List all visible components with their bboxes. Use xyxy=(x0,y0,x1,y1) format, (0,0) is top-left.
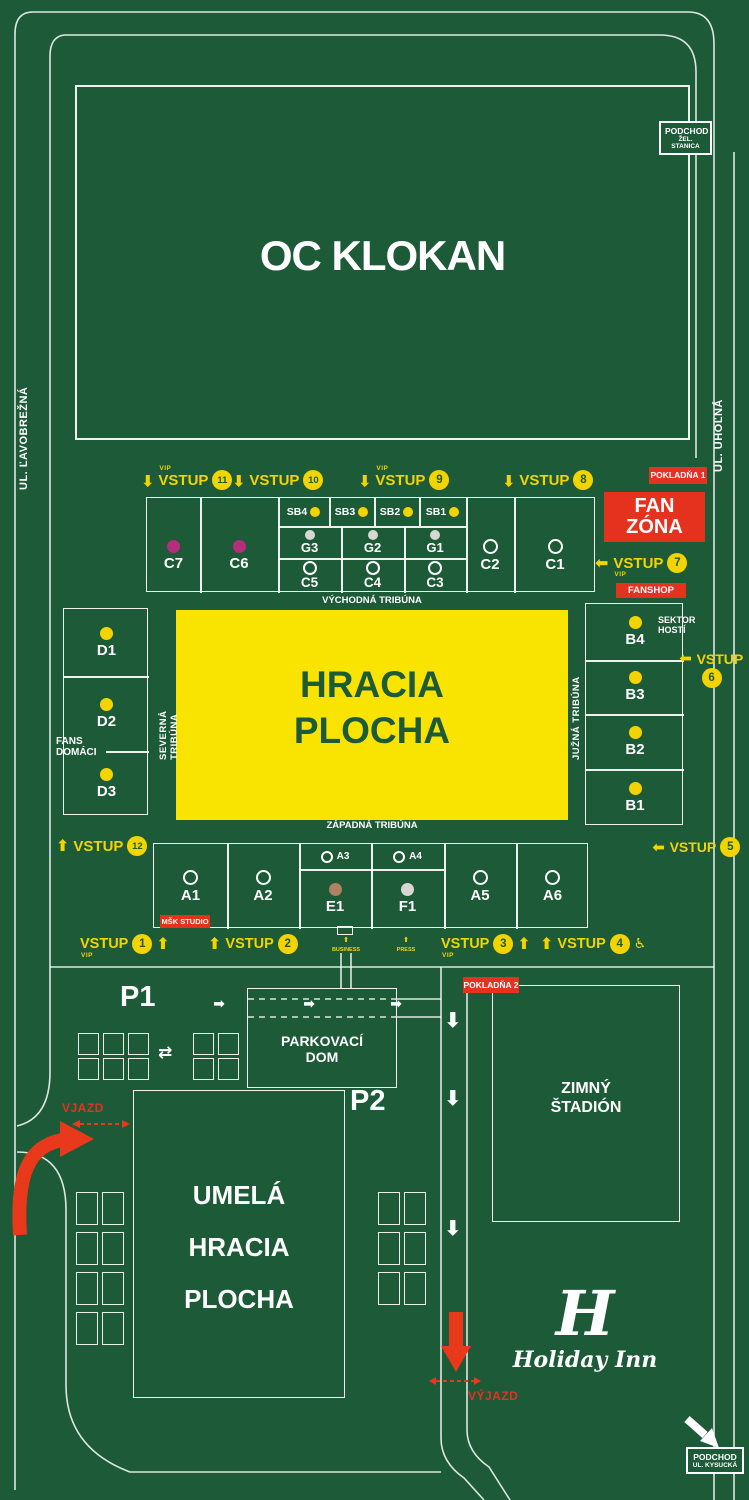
seat-dot-yellow xyxy=(100,627,113,640)
west-stand: A1 A2 A3 A4 E1 F1 A5 A6 xyxy=(153,843,588,928)
gate-word: VSTUPVIP xyxy=(441,937,489,952)
seat-dot-brown xyxy=(329,883,342,896)
seat-dot-yellow xyxy=(629,726,642,739)
parking-slot xyxy=(102,1312,124,1345)
gate-vstup-5: ⬆ VSTUP 5 xyxy=(653,837,740,857)
street-label-lavobrezna: UL. ĽAVOBREŽNÁ xyxy=(18,372,30,490)
gate-number: 8 xyxy=(573,470,593,490)
podchod-kysucka-line1: PODCHOD xyxy=(692,1452,738,1462)
seat-dot-gray xyxy=(305,530,315,540)
parking-slot xyxy=(102,1272,124,1305)
seat-ring xyxy=(548,539,563,554)
zimny-stadion-label: ZIMNÝ ŠTADIÓN xyxy=(493,1079,679,1117)
gate-vstup-2: ⬆ VSTUP 2 xyxy=(208,934,298,954)
tribune-label-east: VÝCHODNÁ TRIBÚNA xyxy=(276,596,468,606)
right-arrow-icon: ⬆ xyxy=(211,998,225,1010)
gate-word: VSTUPVIP xyxy=(80,937,128,952)
sector-a2: A2 xyxy=(227,844,299,929)
pitch-label-line1: HRACIA xyxy=(300,662,444,708)
sector-b2: B2 xyxy=(586,714,684,769)
seat-ring xyxy=(393,851,405,863)
seat-dot-gray xyxy=(430,530,440,540)
press-lane-label: ⬆ PRESS xyxy=(392,929,420,953)
sector-a5: A5 xyxy=(444,844,516,929)
parking-slot xyxy=(378,1232,400,1265)
sector-label: G1 xyxy=(426,540,443,555)
seat-dot-magenta xyxy=(233,540,246,553)
pokladna-1-sign: POKLADŇA 1 xyxy=(649,467,707,484)
seat-dot-yellow xyxy=(629,671,642,684)
parking-p2-label: P2 xyxy=(350,1086,385,1118)
sector-label: A1 xyxy=(181,887,200,904)
sector-c3: C3 xyxy=(404,558,466,593)
seat-ring xyxy=(183,870,198,885)
seat-dot-yellow xyxy=(403,507,413,517)
sector-label: D3 xyxy=(97,783,116,800)
pitch: HRACIA PLOCHA xyxy=(176,610,568,820)
parking-slot xyxy=(128,1058,149,1080)
parking-slot xyxy=(193,1058,214,1080)
vyjazd-label: VÝJAZD xyxy=(468,1390,518,1403)
gate-number: 12 xyxy=(127,836,147,856)
fan-zona-sign: FAN ZÓNA xyxy=(604,492,705,542)
stadium-map: UL. ĽAVOBREŽNÁ UL. UHOĽNÁ PODCHOD ŽEL. S… xyxy=(0,0,749,1500)
gate-word: VIPVSTUP xyxy=(158,473,208,488)
sector-f1: F1 xyxy=(371,869,444,929)
gate-number: 10 xyxy=(303,470,323,490)
sector-g3: G3 xyxy=(278,526,341,558)
sector-a3: A3 xyxy=(299,844,371,869)
two-way-arrows-icon: ⇄ xyxy=(158,1044,172,1063)
sector-label: C6 xyxy=(229,555,248,572)
parking-slot xyxy=(378,1192,400,1225)
down-arrow-icon: ⬆ xyxy=(232,472,245,488)
sector-label: B4 xyxy=(625,631,644,648)
left-arrow-icon: ⬆ xyxy=(652,841,667,854)
sector-c7: C7 xyxy=(147,498,200,603)
seat-ring xyxy=(428,561,442,575)
pitch-label-line2: PLOCHA xyxy=(294,708,450,754)
seat-dot-yellow xyxy=(629,782,642,795)
seat-ring xyxy=(473,870,488,885)
vip-label: VIP xyxy=(442,953,454,960)
gate-vstup-3: VSTUPVIP 3 ⬆ xyxy=(441,934,531,954)
vip-label: VIP xyxy=(159,466,171,473)
up-arrow-icon: ⬆ xyxy=(517,936,530,952)
gate-vstup-9: ⬆ VIPVSTUP 9 xyxy=(358,470,449,490)
parking-slot xyxy=(218,1033,239,1055)
podchod-station-line1: PODCHOD xyxy=(665,126,706,136)
podchod-station-sign: PODCHOD ŽEL. STANICA xyxy=(659,121,712,155)
gate-word: VSTUP xyxy=(249,473,299,488)
left-arrow-icon: ⬆ xyxy=(679,652,694,665)
gate-number: 6 xyxy=(702,668,722,688)
sector-c6: C6 xyxy=(200,498,278,603)
gate-vstup-7: ⬆ VSTUPVIP 7 xyxy=(596,553,687,573)
gate-word: VSTUP xyxy=(670,840,717,854)
business-lane-label: ⬆ BUSINESS xyxy=(330,929,362,953)
gate-word: VSTUPVIP xyxy=(613,556,663,571)
gate-word: VSTUP xyxy=(73,839,123,854)
sector-c2: C2 xyxy=(466,498,514,603)
sector-label: C1 xyxy=(545,556,564,573)
gate-number: 3 xyxy=(493,934,513,954)
vip-label: VIP xyxy=(376,466,388,473)
sector-label: SB4 xyxy=(287,506,307,518)
parking-slot xyxy=(103,1033,124,1055)
parking-slot xyxy=(102,1232,124,1265)
down-arrow-icon: ⬆ xyxy=(444,1216,462,1237)
sector-label: B1 xyxy=(625,797,644,814)
gate-word: VSTUP xyxy=(697,652,744,666)
seat-ring xyxy=(545,870,560,885)
sector-label: G3 xyxy=(301,540,318,555)
parking-slot xyxy=(78,1033,99,1055)
holiday-inn-monogram: H xyxy=(540,1280,630,1348)
parking-slot xyxy=(76,1232,98,1265)
down-arrow-icon: ⬆ xyxy=(444,1008,462,1029)
gate-word: VIPVSTUP xyxy=(375,473,425,488)
holiday-inn-logo: Holiday Inn xyxy=(500,1348,670,1372)
sector-label: C7 xyxy=(164,555,183,572)
pokladna-2-sign: POKLADŇA 2 xyxy=(463,977,519,993)
north-stand: D1 D2 D3 xyxy=(63,608,148,815)
seat-dot-yellow xyxy=(629,616,642,629)
gate-vstup-8: ⬆ VSTUP 8 xyxy=(502,470,593,490)
sector-label: D2 xyxy=(97,713,116,730)
up-arrow-icon: ⬆ xyxy=(403,937,409,944)
wheelchair-icon: ♿ xyxy=(634,936,647,952)
gate-vstup-4: ⬆ VSTUP 4 ♿ xyxy=(540,934,646,954)
umela-plocha-label: UMELÁ HRACIA PLOCHA xyxy=(134,1169,344,1325)
sector-label: B3 xyxy=(625,686,644,703)
sector-label: A5 xyxy=(470,887,489,904)
up-arrow-icon: ⬆ xyxy=(540,936,553,952)
seat-dot-yellow xyxy=(100,698,113,711)
parking-slot xyxy=(404,1272,426,1305)
right-arrow-icon: ⬆ xyxy=(301,998,315,1010)
seat-dot-yellow xyxy=(449,507,459,517)
down-arrow-icon: ⬆ xyxy=(502,472,515,488)
parking-slot xyxy=(102,1192,124,1225)
south-stand: B4 B3 B2 B1 xyxy=(585,603,683,825)
tribune-label-west: ZÁPADNÁ TRIBÚNA xyxy=(276,821,468,831)
gate-number: 1 xyxy=(132,934,152,954)
gate-vstup-11: ⬆ VIPVSTUP 11 xyxy=(141,470,232,490)
seat-dot-magenta xyxy=(167,540,180,553)
fanshop-sign: FANSHOP xyxy=(616,583,686,598)
sector-label: E1 xyxy=(326,898,344,915)
sector-label: B2 xyxy=(625,741,644,758)
gate-number: 4 xyxy=(610,934,630,954)
gate-vstup-6: ⬆ VSTUP 6 xyxy=(680,651,743,688)
sector-b1: B1 xyxy=(586,769,684,826)
podchod-kysucka-sign: PODCHOD UL. KYSUCKÁ xyxy=(686,1447,744,1474)
sector-label: C2 xyxy=(480,556,499,573)
gate-vstup-10: ⬆ VSTUP 10 xyxy=(232,470,323,490)
sector-label: F1 xyxy=(399,898,417,915)
sector-c4: C4 xyxy=(341,558,404,593)
parking-slot xyxy=(218,1058,239,1080)
left-arrow-icon: ⬆ xyxy=(595,556,611,569)
oc-klokan-label: OC KLOKAN xyxy=(77,233,688,279)
seat-dot-yellow xyxy=(100,768,113,781)
tribune-label-north: SEVERNÁ TRIBÚNA xyxy=(158,668,180,760)
up-arrow-icon: ⬆ xyxy=(208,936,221,952)
parking-slot xyxy=(76,1272,98,1305)
down-arrow-icon: ⬆ xyxy=(358,472,371,488)
parking-house: PARKOVACÍ DOM xyxy=(247,988,397,1088)
down-arrow-icon: ⬆ xyxy=(141,472,154,488)
vjazd-label: VJAZD xyxy=(62,1102,104,1115)
vip-label: VIP xyxy=(614,572,626,579)
gate-number: 9 xyxy=(429,470,449,490)
gate-number: 11 xyxy=(212,470,232,490)
sector-sb4: SB4 xyxy=(278,498,329,526)
podchod-station-line2: ŽEL. STANICA xyxy=(665,136,706,150)
sector-a4: A4 xyxy=(371,844,444,869)
sector-sb1: SB1 xyxy=(419,498,466,526)
guest-sector-label: SEKTORHOSTÍ xyxy=(658,616,695,636)
east-stand: C7 C6 SB4 SB3 SB2 SB1 G3 G2 xyxy=(146,497,595,592)
sector-label: A3 xyxy=(337,851,350,862)
seat-ring xyxy=(483,539,498,554)
right-arrow-icon: ⬆ xyxy=(388,998,402,1010)
sector-label: G2 xyxy=(364,540,381,555)
seat-ring xyxy=(321,851,333,863)
parking-slot xyxy=(103,1058,124,1080)
seat-dot-yellow xyxy=(310,507,320,517)
parking-slot xyxy=(76,1192,98,1225)
seat-dot-yellow xyxy=(358,507,368,517)
vip-label: VIP xyxy=(81,953,93,960)
fans-home-label: FANSDOMÁCI xyxy=(56,736,97,758)
sector-a6: A6 xyxy=(516,844,589,929)
up-arrow-icon: ⬆ xyxy=(156,936,169,952)
parking-p1-label: P1 xyxy=(120,982,155,1014)
sector-label: D1 xyxy=(97,642,116,659)
seat-dot-gray xyxy=(401,883,414,896)
sector-label: C3 xyxy=(426,575,443,590)
seat-ring xyxy=(256,870,271,885)
parking-slot xyxy=(193,1033,214,1055)
gate-word: VSTUP xyxy=(557,937,605,952)
sector-g2: G2 xyxy=(341,526,404,558)
sector-sb2: SB2 xyxy=(374,498,419,526)
gate-number: 2 xyxy=(278,934,298,954)
sector-d1: D1 xyxy=(64,609,149,676)
sector-c1: C1 xyxy=(514,498,596,603)
parking-slot xyxy=(76,1312,98,1345)
oc-klokan-building: OC KLOKAN xyxy=(75,85,690,440)
seat-ring xyxy=(366,561,380,575)
street-label-uholna: UL. UHOĽNÁ xyxy=(713,388,725,472)
seat-dot-gray xyxy=(368,530,378,540)
sector-label: A2 xyxy=(253,887,272,904)
gate-vstup-12: ⬆ VSTUP 12 xyxy=(56,836,147,856)
sector-b3: B3 xyxy=(586,660,684,714)
sector-label: SB3 xyxy=(335,506,355,518)
sector-c5: C5 xyxy=(278,558,341,593)
sector-label: SB2 xyxy=(380,506,400,518)
parking-slot xyxy=(404,1232,426,1265)
sector-label: A4 xyxy=(409,851,422,862)
gate-number: 7 xyxy=(667,553,687,573)
up-arrow-icon: ⬆ xyxy=(343,937,349,944)
parking-slot xyxy=(128,1033,149,1055)
gate-vstup-1: VSTUPVIP 1 ⬆ xyxy=(80,934,170,954)
podchod-kysucka-line2: UL. KYSUCKÁ xyxy=(692,1462,738,1469)
tribune-label-south: JUŽNÁ TRIBÚNA xyxy=(571,668,582,760)
parking-slot xyxy=(404,1192,426,1225)
seat-ring xyxy=(303,561,317,575)
sector-sb3: SB3 xyxy=(329,498,374,526)
sector-label: A6 xyxy=(543,887,562,904)
sector-e1: E1 xyxy=(299,869,371,929)
parking-slot xyxy=(78,1058,99,1080)
parking-house-label: PARKOVACÍ DOM xyxy=(248,1033,396,1065)
up-arrow-icon: ⬆ xyxy=(56,838,69,854)
sector-d3: D3 xyxy=(64,751,149,816)
msk-studio-sign: MŠK STUDIO xyxy=(160,915,210,928)
down-arrow-icon: ⬆ xyxy=(444,1086,462,1107)
gate-word: VSTUP xyxy=(225,937,273,952)
sector-label: SB1 xyxy=(426,506,446,518)
sector-g1: G1 xyxy=(404,526,466,558)
umela-plocha-building: UMELÁ HRACIA PLOCHA xyxy=(133,1090,345,1398)
gate-word: VSTUP xyxy=(519,473,569,488)
gate-number: 5 xyxy=(720,837,740,857)
zimny-stadion-building: ZIMNÝ ŠTADIÓN xyxy=(492,985,680,1222)
parking-slot xyxy=(378,1272,400,1305)
sector-label: C5 xyxy=(301,575,318,590)
sector-label: C4 xyxy=(364,575,381,590)
